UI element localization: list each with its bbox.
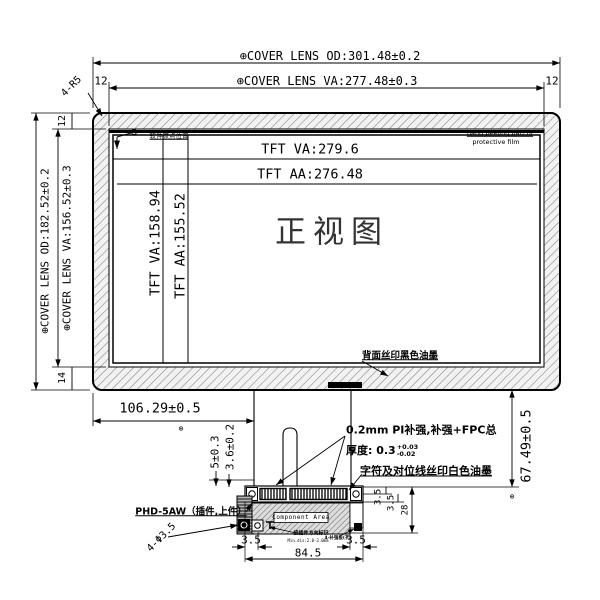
dim-cover-od-height: ⊕COVER LENS OD:182.52±0.2 — [40, 168, 51, 334]
dim-tft-aa-height: TFT AA:155.52 — [174, 193, 188, 299]
dim-cover-va-height: ⊕COVER LENS VA:156.52±0.3 — [62, 165, 73, 331]
white-ink-note: 字符及对位线丝印白色油墨 — [360, 466, 492, 477]
dim-fpc-right: 67.49±0.5 — [520, 409, 534, 482]
peel-note-line1: hand peeling part of — [467, 130, 533, 137]
position-symbol-left: ⊕ — [179, 425, 184, 433]
dim-offset-left-bottom: 14 — [58, 372, 68, 384]
component-area-label: Component Area — [272, 515, 330, 521]
dim-step-5: 5±0.3 — [210, 435, 221, 468]
tiny-note-3: 4-补强板(孔) — [324, 537, 351, 542]
position-symbol-right: ⊕ — [510, 493, 515, 501]
dim-35-left: 3.5 — [241, 535, 261, 546]
dim-offset-top-right: 12 — [545, 76, 558, 87]
dim-step-36: 3.6±0.2 — [225, 424, 236, 470]
thickness-note: 厚度: 0.3+0.03-0.02 — [346, 444, 418, 458]
dim-fpc-left: 106.29±0.5 — [119, 402, 200, 416]
dim-cover-va-width: ⊕COVER LENS VA:277.48±0.3 — [237, 75, 418, 87]
connector-note: PHD-5AW（插件,上件） — [135, 507, 247, 517]
dim-tft-va-height: TFT VA:158.94 — [149, 190, 163, 296]
dim-right-35b: 3.5 — [388, 495, 397, 511]
drawing-linework — [0, 0, 600, 600]
dim-tft-va-width: TFT VA:279.6 — [261, 143, 359, 157]
dim-offset-top-left: 12 — [94, 76, 107, 87]
dim-width-845: 84.5 — [295, 548, 322, 559]
tiny-note-2: Min.dis:2.0-3.0mm — [288, 539, 329, 543]
tiny-note-1: 接插件方向标识 — [293, 532, 328, 537]
dim-tft-aa-width: TFT AA:276.48 — [257, 168, 363, 182]
thickness-value: 厚度: 0.3 — [346, 444, 396, 457]
dim-offset-left-top: 12 — [58, 115, 68, 127]
dim-cover-od-width: ⊕COVER LENS OD:301.48±0.2 — [240, 50, 421, 62]
software-origin-note: 软件原点位置 — [150, 133, 189, 140]
view-title: 正视图 — [275, 218, 389, 249]
engineering-drawing-canvas: ⊕COVER LENS OD:301.48±0.2 ⊕COVER LENS VA… — [0, 0, 600, 600]
peel-note-line2: protective film — [472, 139, 519, 146]
dim-right-35a: 3.5 — [375, 489, 384, 505]
pi-reinforce-note: 0.2mm PI补强,补强+FPC总 — [346, 425, 496, 436]
back-ink-note: 背面丝印黑色油墨 — [362, 351, 438, 361]
thickness-tolerance: +0.03-0.02 — [397, 444, 418, 458]
dim-right-28: 28 — [402, 505, 411, 516]
